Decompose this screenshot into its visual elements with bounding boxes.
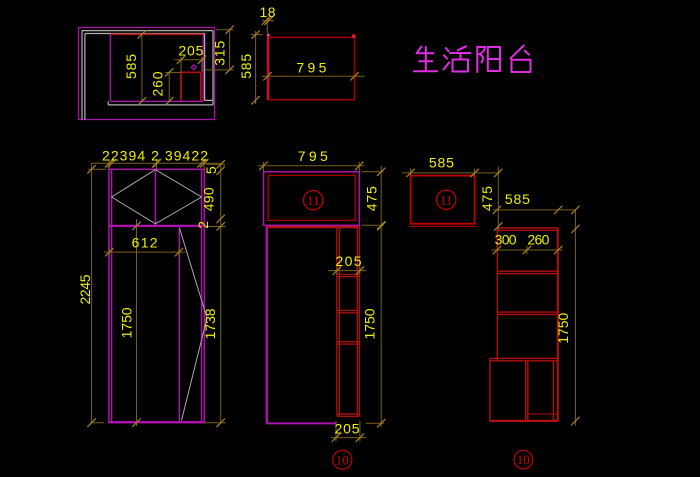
svg-text:2: 2 [195,221,211,229]
svg-text:1750: 1750 [555,312,571,343]
svg-text:1738: 1738 [202,308,218,339]
svg-text:490: 490 [201,187,217,211]
svg-text:315: 315 [212,40,228,65]
svg-text:2245: 2245 [77,274,93,304]
svg-text:205: 205 [178,43,203,59]
svg-text:795: 795 [296,60,326,76]
svg-text:585: 585 [238,54,254,79]
svg-text:10: 10 [336,452,349,467]
svg-text:1750: 1750 [119,307,135,338]
svg-text:11: 11 [440,192,453,207]
svg-text:475: 475 [479,186,495,211]
svg-text:585: 585 [429,155,454,171]
svg-text:260: 260 [150,71,166,96]
svg-text:585: 585 [123,54,139,79]
svg-text:11: 11 [307,193,320,208]
svg-text:22394 2 39422: 22394 2 39422 [102,148,208,164]
svg-text:18: 18 [260,4,276,20]
svg-text:585: 585 [505,191,530,207]
svg-text:205: 205 [336,253,362,269]
svg-text:5: 5 [203,166,219,174]
svg-text:795: 795 [298,148,328,164]
svg-text:612: 612 [132,235,158,251]
svg-text:205: 205 [335,421,360,437]
svg-text:10: 10 [517,452,530,467]
svg-text:1750: 1750 [362,308,378,339]
svg-text:300: 300 [495,232,517,248]
svg-text:475: 475 [364,186,380,211]
svg-text:260: 260 [527,232,549,248]
